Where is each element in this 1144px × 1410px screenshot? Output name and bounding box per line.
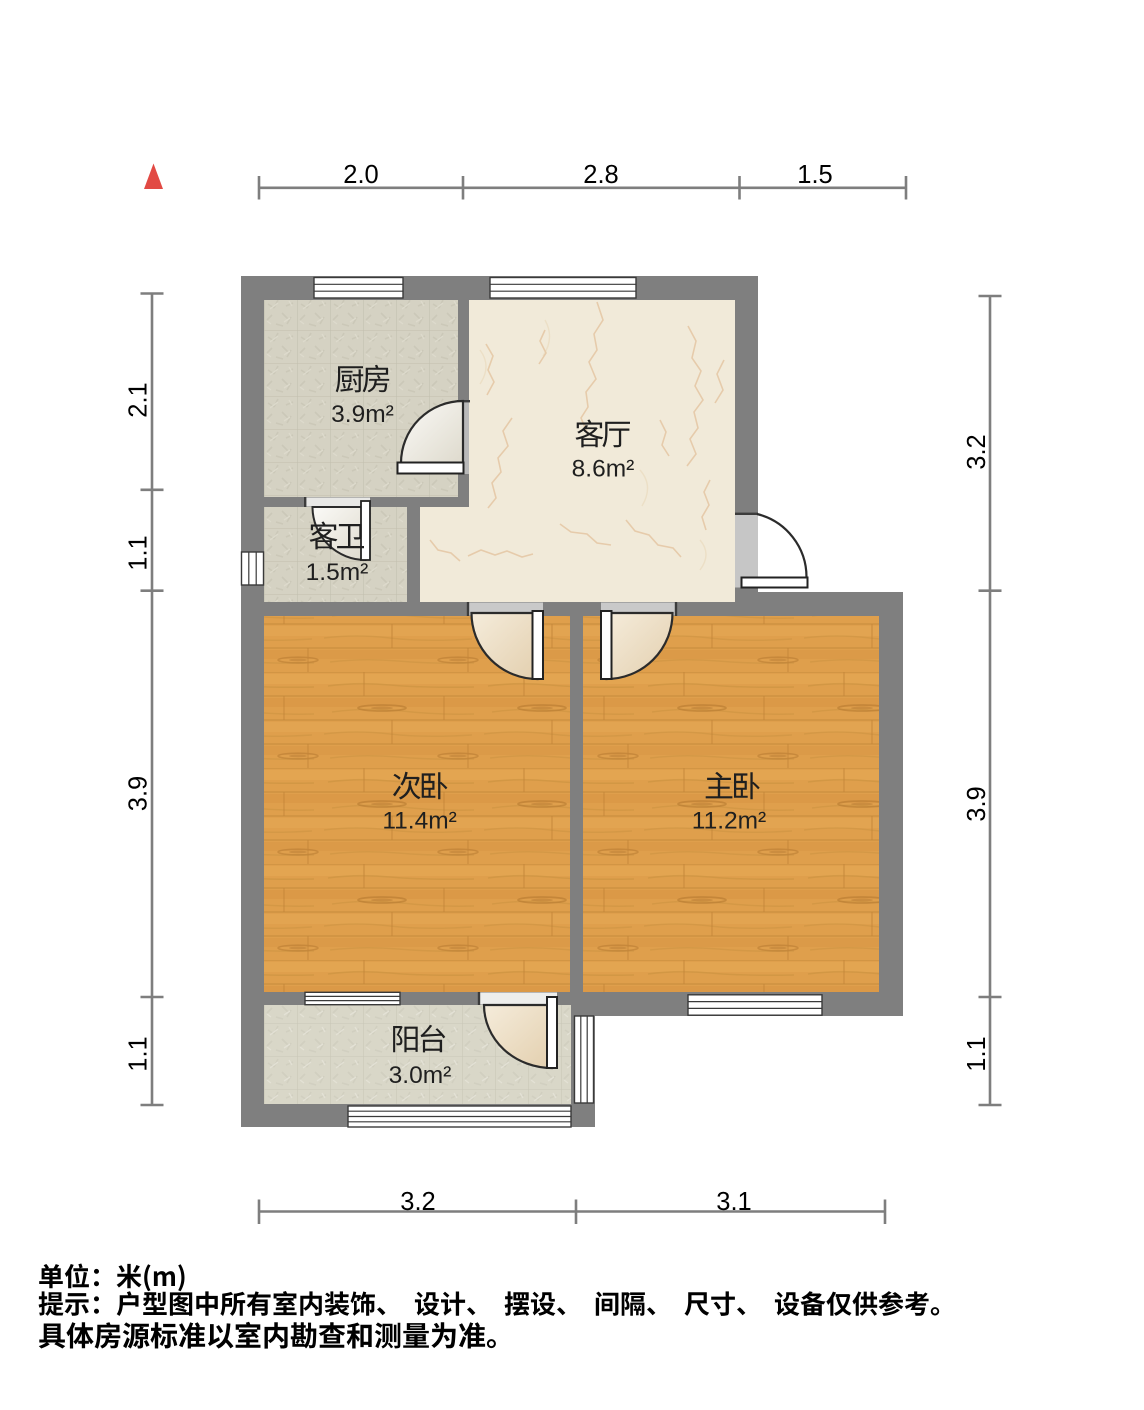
svg-text:2.8: 2.8: [583, 161, 618, 189]
svg-text:8.6m²: 8.6m²: [572, 456, 635, 483]
svg-text:2.1: 2.1: [125, 382, 153, 417]
svg-text:11.2m²: 11.2m²: [692, 808, 766, 835]
svg-text:2.0: 2.0: [343, 161, 378, 189]
svg-text:1.1: 1.1: [125, 1036, 153, 1071]
svg-text:1.1: 1.1: [125, 535, 153, 570]
svg-text:1.5m²: 1.5m²: [306, 559, 369, 586]
svg-text:1.5: 1.5: [797, 161, 832, 189]
svg-text:3.9: 3.9: [963, 786, 991, 821]
svg-text:1.1: 1.1: [963, 1036, 991, 1071]
svg-text:3.2: 3.2: [400, 1188, 435, 1216]
svg-text:3.1: 3.1: [716, 1188, 751, 1216]
svg-text:3.9m²: 3.9m²: [331, 401, 394, 428]
svg-text:3.2: 3.2: [963, 434, 991, 469]
svg-text:11.4m²: 11.4m²: [382, 808, 456, 835]
svg-text:3.9: 3.9: [125, 776, 153, 811]
svg-text:3.0m²: 3.0m²: [389, 1062, 452, 1089]
